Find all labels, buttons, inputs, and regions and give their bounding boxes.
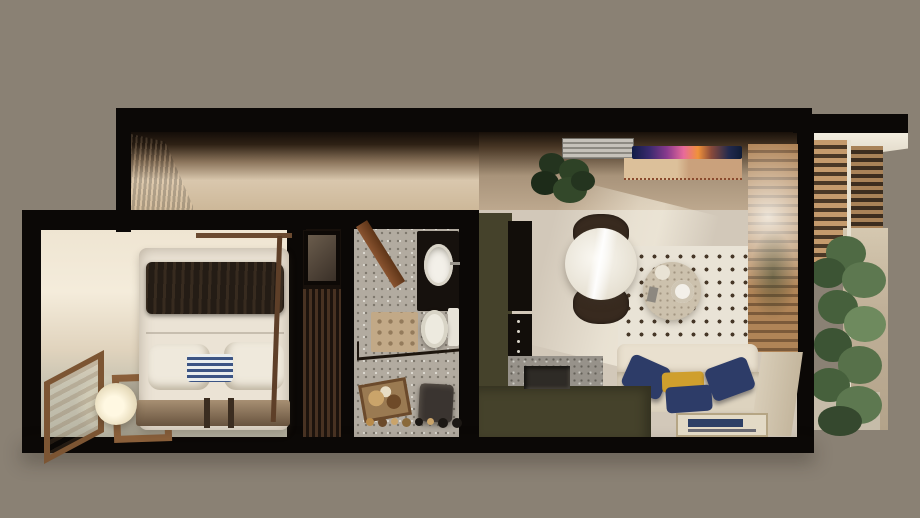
wall-desk	[624, 158, 742, 180]
dining-table	[565, 228, 637, 300]
coffee-cup	[671, 280, 694, 303]
balcony-plant	[808, 236, 896, 438]
closet-mirror-cabinet	[304, 231, 340, 285]
toiletry-item	[427, 418, 434, 425]
wall-top	[116, 108, 812, 132]
toiletry-item	[452, 418, 462, 428]
floorplan-render	[0, 0, 920, 518]
bed-strap	[204, 398, 210, 428]
plant-shadow	[750, 230, 796, 320]
artwork-navy-stripe	[688, 419, 743, 427]
toilet-tank	[448, 308, 459, 346]
artwork-gray-stripe	[688, 429, 756, 432]
wall-bedroom-top	[22, 210, 306, 230]
bathroom-sink	[424, 244, 453, 286]
toiletries-row	[366, 416, 464, 430]
toilet-bowl	[421, 310, 448, 348]
plant-leaf	[571, 171, 595, 191]
wall-closet-bath-divider	[341, 219, 354, 453]
bed-strap	[228, 398, 234, 428]
wall-bedroom-left	[22, 210, 41, 453]
cooktop-knob	[517, 340, 520, 343]
desk-laptop-screen	[632, 146, 742, 159]
duvet-fold-line	[146, 332, 284, 334]
cooktop-knob	[517, 320, 520, 323]
closet-wardrobe	[303, 289, 341, 437]
toiletry-item	[402, 418, 411, 427]
paper-lantern-lamp	[95, 383, 137, 425]
toiletry-item	[366, 418, 374, 426]
toiletry-item	[415, 418, 423, 426]
plant-leaf	[818, 406, 862, 436]
sink-faucet	[450, 262, 460, 265]
bed-wood-base	[136, 400, 290, 426]
monstera-plant	[531, 151, 599, 209]
kitchen-appliance-column	[508, 221, 532, 311]
kitchen-island	[479, 386, 651, 437]
bed-throw-blanket	[146, 262, 284, 314]
bed-striped-pillow	[187, 354, 233, 382]
small-jar	[655, 265, 670, 280]
kitchen-cooktop	[508, 314, 532, 360]
kitchen-sink	[524, 366, 570, 389]
toiletry-item	[391, 418, 398, 425]
toiletry-item	[378, 418, 387, 427]
sofa-pillow-navy-center	[665, 384, 713, 413]
plant-leaf	[844, 306, 886, 342]
plant-leaf	[810, 258, 846, 288]
cooktop-knob	[517, 350, 520, 353]
toiletry-item	[438, 418, 448, 428]
wall-right	[797, 131, 814, 453]
cooktop-knob	[517, 330, 520, 333]
wall-bathroom-top	[287, 210, 479, 229]
